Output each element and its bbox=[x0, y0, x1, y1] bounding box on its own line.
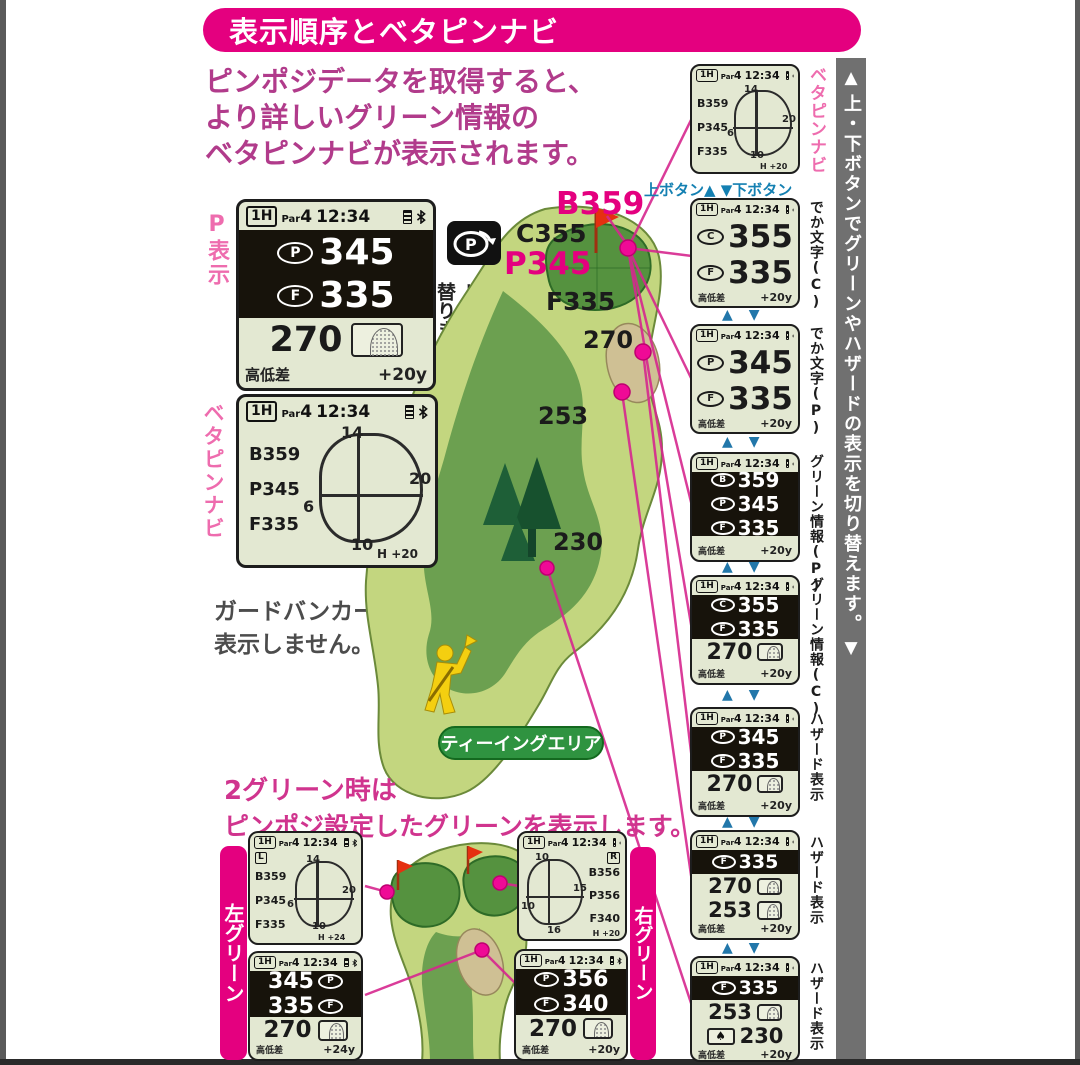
center-icon: C bbox=[697, 229, 724, 245]
front-icon: F bbox=[712, 981, 736, 995]
par-label: Par4 bbox=[281, 402, 312, 422]
bluetooth-icon bbox=[792, 331, 794, 341]
left-green-badge: L bbox=[255, 852, 267, 864]
battery-icon bbox=[786, 714, 789, 723]
bluetooth-icon bbox=[792, 582, 794, 592]
front-icon: F bbox=[697, 391, 724, 407]
front-icon: F bbox=[712, 855, 736, 869]
green-outline-shape bbox=[319, 433, 423, 543]
center-icon: C bbox=[711, 598, 735, 612]
bluetooth-icon bbox=[619, 838, 621, 848]
lcd-screen-greeninfo-c: 1HPar412:34 C355 F335 270 高低差+20y bbox=[690, 575, 800, 685]
battery-icon bbox=[786, 963, 789, 972]
back-distance: B359 bbox=[249, 437, 300, 472]
front-distance: F335 bbox=[249, 507, 300, 542]
green-depth-top: 14 bbox=[341, 423, 363, 442]
elevation-value: +20y bbox=[378, 365, 427, 385]
green-width-left: 6 bbox=[303, 497, 314, 516]
bluetooth-icon bbox=[352, 958, 357, 968]
lcd-screen-hazard-2: 1HPar412:34 F335 270 253 高低差+20y bbox=[690, 830, 800, 940]
bluetooth-icon bbox=[352, 838, 357, 848]
pin-icon: P bbox=[318, 974, 343, 989]
back-icon: B bbox=[711, 473, 735, 487]
front-icon: F bbox=[318, 999, 343, 1014]
elevation-value: H +20 bbox=[377, 547, 418, 561]
green-depth-bottom: 10 bbox=[351, 535, 373, 554]
battery-icon bbox=[344, 958, 349, 967]
battery-icon bbox=[786, 205, 789, 214]
bluetooth-icon bbox=[792, 963, 794, 973]
teeing-area-label: ティーイングエリア bbox=[438, 726, 604, 760]
pin-icon: P bbox=[697, 355, 724, 371]
battery-icon bbox=[786, 582, 789, 591]
hole-indicator: 1H bbox=[246, 206, 277, 226]
battery-icon bbox=[403, 210, 412, 224]
map-front-distance: F335 bbox=[546, 287, 615, 316]
hazard-distance: 270 bbox=[269, 320, 342, 360]
hole-indicator: 1H bbox=[696, 69, 718, 81]
map-hazard-distance-1: 270 bbox=[583, 326, 633, 354]
tree-icon bbox=[707, 1028, 735, 1045]
green-icon bbox=[351, 323, 403, 357]
svg-text:P: P bbox=[465, 235, 477, 254]
manual-page: 表示順序とベタピンナビ ピンポジデータを取得すると、 より詳しいグリーン情報の … bbox=[0, 0, 1080, 1065]
battery-icon bbox=[786, 459, 789, 468]
bluetooth-icon bbox=[792, 459, 794, 469]
map-back-distance: B359 bbox=[556, 186, 644, 222]
front-distance: 335 bbox=[319, 275, 394, 316]
map-hazard-distance-2: 253 bbox=[538, 402, 588, 430]
lcd-screen-bigtext-p: 1HPar412:34 P345 F335 高低差+20y bbox=[690, 324, 800, 434]
battery-icon bbox=[344, 838, 349, 847]
battery-icon bbox=[786, 71, 789, 80]
bluetooth-icon bbox=[418, 405, 428, 419]
lcd-screen-greeninfo-p: 1HPar412:34 B359 P345 F335 高低差+20y bbox=[690, 452, 800, 562]
bluetooth-icon bbox=[792, 205, 794, 215]
bluetooth-icon bbox=[416, 210, 426, 224]
right-green-bar: 右グリーン bbox=[630, 847, 656, 1060]
front-icon: F bbox=[277, 285, 313, 307]
lcd-screen-left-green-hazard: 1HPar412:34 345P 335F 270 高低差+24y bbox=[248, 951, 363, 1061]
bluetooth-icon bbox=[792, 837, 794, 847]
bunker-icon bbox=[583, 1018, 613, 1039]
hole-indicator: 1H bbox=[246, 401, 277, 421]
green-width-right: 20 bbox=[409, 469, 431, 488]
front-icon: F bbox=[711, 754, 735, 768]
lcd-screen-bigtext-c: 1HPar412:34 C355 F335 高低差+20y bbox=[690, 198, 800, 308]
pin-icon: P bbox=[711, 497, 735, 511]
battery-icon bbox=[610, 956, 615, 965]
map-pin-distance: P345 bbox=[504, 246, 591, 282]
front-icon: F bbox=[534, 997, 559, 1012]
pin-icon: P bbox=[534, 972, 559, 987]
left-green-bar: 左グリーン bbox=[220, 846, 247, 1060]
front-icon: F bbox=[711, 622, 735, 636]
map-center-distance: C355 bbox=[516, 219, 587, 248]
bunker-icon bbox=[318, 1020, 348, 1041]
lcd-screen-p-display: 1HPar412:34 P345 F335 270 高低差+20y bbox=[236, 199, 436, 391]
battery-icon bbox=[786, 331, 789, 340]
par-label: Par4 bbox=[281, 207, 312, 227]
green-icon bbox=[757, 643, 783, 661]
lcd-header: 1HPar412:34 bbox=[239, 397, 435, 425]
pin-distance: 345 bbox=[319, 232, 394, 273]
pin-distance: P345 bbox=[249, 472, 300, 507]
bunker-icon bbox=[757, 775, 783, 793]
pin-icon: P bbox=[711, 730, 735, 744]
p-switch-icon: P bbox=[447, 221, 501, 265]
bunker-icon bbox=[757, 878, 782, 895]
battery-icon bbox=[405, 405, 414, 419]
bluetooth-icon bbox=[792, 714, 794, 724]
map-hazard-distance-3: 230 bbox=[553, 528, 603, 556]
lcd-screen-hazard-3: 1HPar412:34 F335 253 230 高低差+20y bbox=[690, 956, 800, 1062]
bunker-icon bbox=[757, 1004, 782, 1021]
lcd-screen-left-green: 1HPar412:34 L B359P345F335 14 20 6 10 H … bbox=[248, 831, 363, 945]
pin-icon: P bbox=[277, 242, 313, 264]
lcd-screen-betapin-mini: 1HPar412:34 B359P345F335 14 20 6 10 H +2… bbox=[690, 64, 800, 174]
elevation-label: 高低差 bbox=[245, 364, 290, 385]
front-icon: F bbox=[697, 265, 724, 281]
lcd-screen-hazard-1: 1HPar412:34 P345 F335 270 高低差+20y bbox=[690, 707, 800, 817]
bluetooth-icon bbox=[617, 956, 622, 966]
lcd-screen-right-green: 1HPar412:34 R 10 15 10 16 B356P356F340 H… bbox=[517, 831, 627, 941]
bunker-icon bbox=[757, 901, 782, 920]
lcd-header: 1HPar412:34 bbox=[239, 202, 433, 230]
lcd-screen-right-green-hazard: 1HPar412:34 P356 F340 270 高低差+20y bbox=[514, 949, 628, 1061]
up-down-button-note: 上ボタン▲ ▼下ボタン bbox=[644, 179, 792, 200]
time-label: 12:34 bbox=[316, 207, 370, 227]
battery-icon bbox=[786, 837, 789, 846]
battery-icon bbox=[613, 838, 616, 847]
bluetooth-icon bbox=[792, 71, 794, 81]
time-label: 12:34 bbox=[316, 402, 370, 422]
lcd-screen-betapin: 1HPar412:34 B359P345F335 14 20 6 10 H +2… bbox=[236, 394, 438, 568]
front-icon: F bbox=[711, 521, 735, 535]
